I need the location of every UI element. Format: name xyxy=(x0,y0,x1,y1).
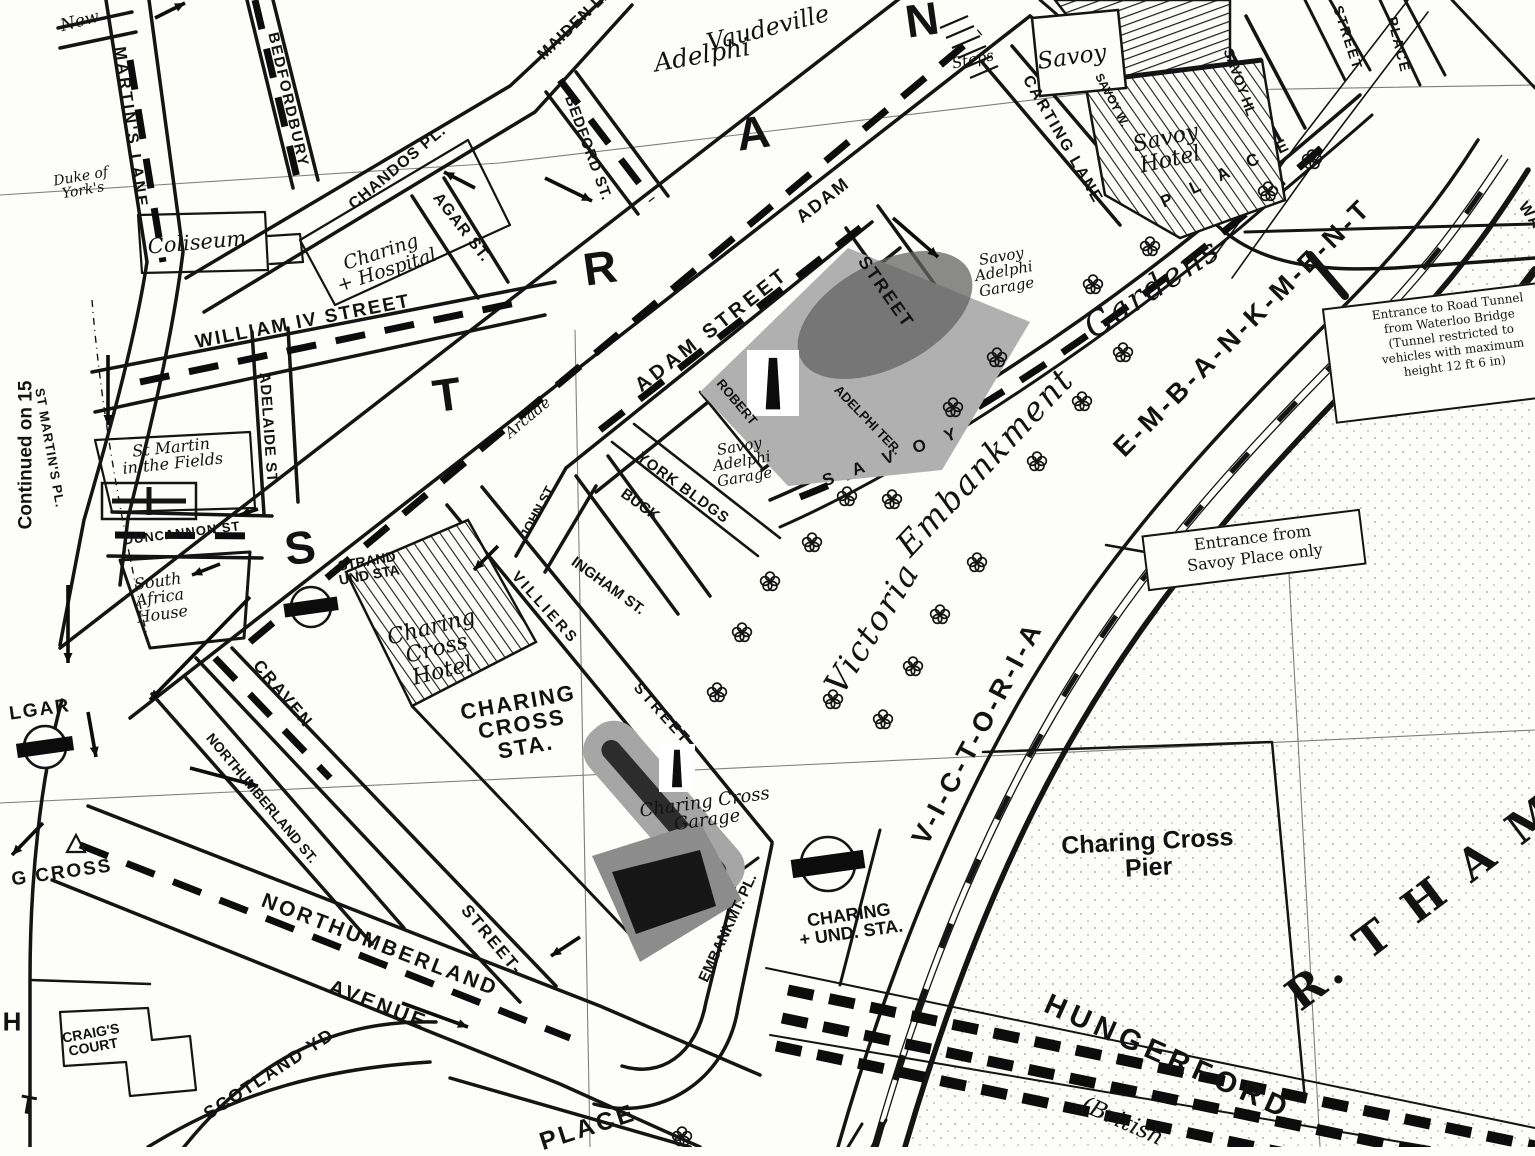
one-way-arrow-icon xyxy=(104,355,113,425)
tree-icon xyxy=(883,490,902,508)
tree-icon xyxy=(874,710,893,728)
river-thames-area xyxy=(905,160,1535,1147)
tree-icon xyxy=(1141,237,1160,255)
adelphi-monument-icon xyxy=(747,350,799,416)
street-map-canvas: Continued on 15NewMARTIN'S LANEST MARTIN… xyxy=(0,0,1535,1147)
tree-icon xyxy=(824,690,843,708)
map-page: { "map": { "title": "Street map — Charin… xyxy=(0,0,1535,1147)
tree-icon xyxy=(968,553,987,571)
tree-icon xyxy=(904,657,923,675)
one-way-arrow-icon xyxy=(192,564,220,576)
one-way-arrow-icon xyxy=(150,597,250,700)
tree-icon xyxy=(803,533,822,551)
one-way-arrow-icon xyxy=(88,712,99,757)
tree-icon xyxy=(708,683,727,701)
tree-icon xyxy=(1114,343,1133,361)
tree-icon xyxy=(1084,275,1103,293)
tree-icon xyxy=(931,605,950,623)
trafalgar-station-roundel xyxy=(16,726,74,768)
one-way-arrow-icon xyxy=(155,3,185,18)
charing-cross-hotel-block xyxy=(346,520,536,706)
tree-icon xyxy=(733,623,752,641)
embankment-station-roundel xyxy=(791,837,866,891)
one-way-arrow-icon xyxy=(545,178,592,201)
shaded-blocks xyxy=(573,224,1030,962)
savoy-theatre-block xyxy=(1032,10,1126,96)
street-network-layer xyxy=(0,0,1535,1147)
one-way-arrow-icon xyxy=(190,768,258,788)
tree-icon xyxy=(1028,452,1047,470)
tree-icon xyxy=(761,572,780,590)
one-way-arrow-icon xyxy=(551,937,580,956)
charing-cross-monument-icon xyxy=(659,744,695,792)
tree-icon xyxy=(1073,392,1092,410)
